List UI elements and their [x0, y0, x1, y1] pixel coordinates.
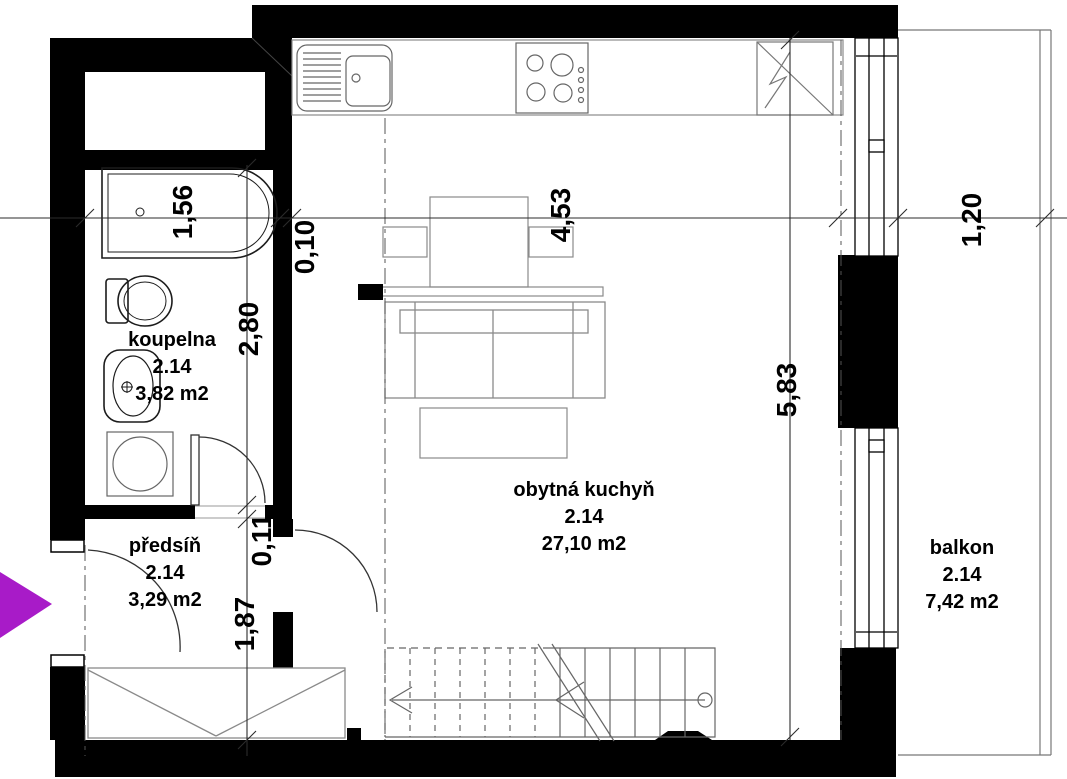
dim-label-5-83: 5,83: [771, 363, 803, 418]
break-line: [552, 644, 614, 741]
sideboard: [358, 284, 603, 300]
dim-label-0-11: 0,11: [246, 514, 278, 567]
balcony-outline: [898, 30, 1051, 755]
walk-line: [390, 682, 712, 718]
break-line: [538, 644, 600, 741]
tv-box: [358, 284, 383, 300]
room-area: 3,82 m2: [128, 381, 216, 408]
room-name: balkon: [925, 535, 998, 562]
shaft-void: [85, 72, 265, 150]
entrance-arrow-icon: [0, 572, 52, 638]
bathroom-door-leaf: [191, 435, 199, 505]
dim-label-1-20: 1,20: [956, 193, 988, 248]
kitchen-counter: [292, 40, 843, 115]
entrance-door-frame: [51, 540, 84, 667]
sofa: [385, 302, 605, 398]
dim-label-2-80: 2,80: [233, 302, 265, 357]
kitchen-sink-icon: [297, 45, 392, 111]
floor-plan: koupelna 2.14 3,82 m2 předsíň 2.14 3,29 …: [0, 0, 1067, 779]
room-area: 27,10 m2: [513, 531, 654, 558]
coffee-table: [420, 408, 567, 458]
room-name: koupelna: [128, 327, 216, 354]
hob-icon: [516, 43, 588, 113]
room-label-balkon: balkon 2.14 7,42 m2: [925, 535, 998, 616]
room-name: předsíň: [128, 533, 201, 560]
room-number: 2.14: [925, 562, 998, 589]
room-area: 3,29 m2: [128, 587, 201, 614]
dim-label-4-53: 4,53: [545, 188, 577, 243]
toilet-icon: [106, 276, 172, 326]
hall-door-arc: [295, 530, 377, 612]
room-number: 2.14: [128, 560, 201, 587]
washing-machine-icon: [107, 432, 173, 496]
room-name: obytná kuchyň: [513, 477, 654, 504]
room-number: 2.14: [513, 504, 654, 531]
chair: [383, 227, 427, 257]
fridge-icon: [757, 42, 833, 115]
room-label-predsin: předsíň 2.14 3,29 m2: [128, 533, 201, 614]
wardrobe-icon: [88, 668, 345, 738]
dim-label-1-87: 1,87: [229, 597, 261, 652]
room-area: 7,42 m2: [925, 589, 998, 616]
dim-label-1-56: 1,56: [167, 185, 199, 240]
room-label-obytna-kuchyn: obytná kuchyň 2.14 27,10 m2: [513, 477, 654, 558]
room-number: 2.14: [128, 354, 216, 381]
stairs: [385, 644, 715, 741]
bathroom-door-arc: [199, 437, 265, 503]
dim-label-0-10: 0,10: [289, 220, 321, 275]
room-label-koupelna: koupelna 2.14 3,82 m2: [128, 327, 216, 408]
